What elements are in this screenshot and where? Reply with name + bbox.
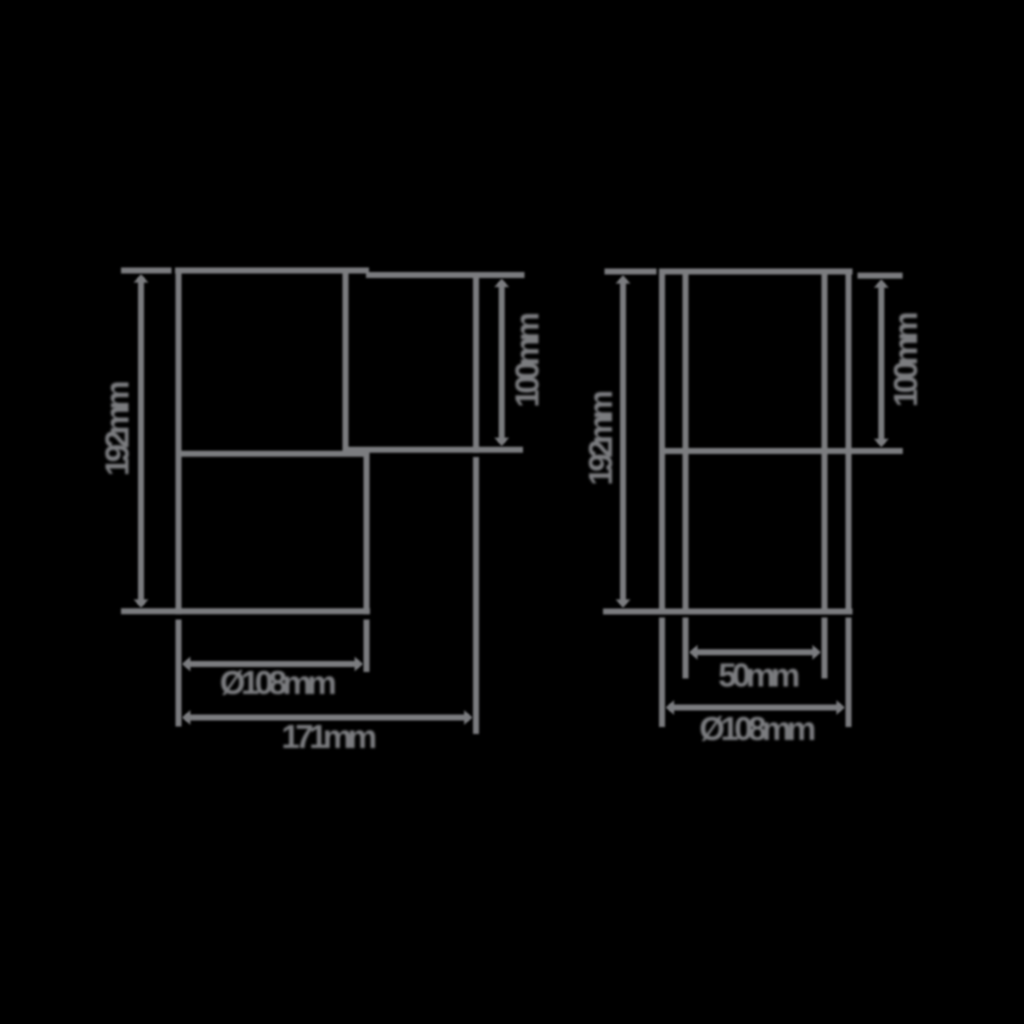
- svg-text:192mm: 192mm: [582, 391, 619, 485]
- svg-text:100mm: 100mm: [887, 313, 924, 407]
- svg-text:50mm: 50mm: [718, 656, 799, 693]
- svg-text:171mm: 171mm: [281, 718, 375, 755]
- svg-text:Ø108mm: Ø108mm: [699, 710, 815, 747]
- svg-text:192mm: 192mm: [99, 382, 136, 476]
- svg-text:100mm: 100mm: [509, 313, 546, 407]
- svg-text:Ø108mm: Ø108mm: [220, 664, 336, 701]
